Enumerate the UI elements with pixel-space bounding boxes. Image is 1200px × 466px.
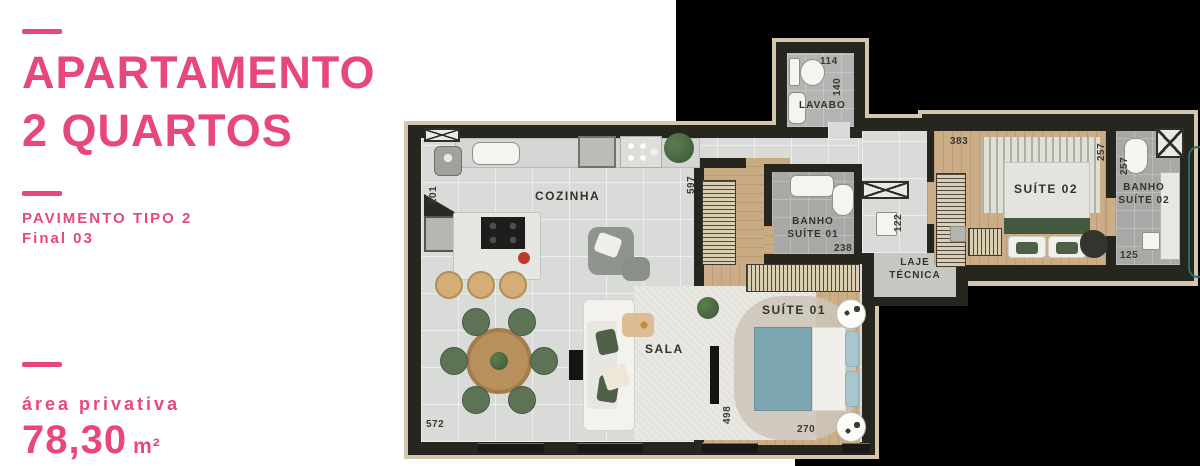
dim-lavabo-depth: 140 xyxy=(832,68,843,96)
room-label-sala: SALA xyxy=(645,342,684,356)
dim-suite02-depth: 257 xyxy=(1096,133,1107,161)
dim-sala-width: 572 xyxy=(426,419,444,430)
bed-suite01-sheet xyxy=(812,327,846,411)
pantry-module xyxy=(620,136,662,168)
side-table xyxy=(622,313,654,337)
bench-suite02 xyxy=(968,228,1002,256)
private-area-value: 78,30m² xyxy=(22,418,161,463)
dining-chair-6 xyxy=(508,308,536,336)
laje-line2: TÉCNICA xyxy=(876,269,954,282)
table-centerpiece xyxy=(490,352,508,370)
door-lavabo xyxy=(828,122,850,140)
dining-chair-1 xyxy=(530,347,558,375)
area-unit: m² xyxy=(133,435,161,458)
dim-lavabo-width: 114 xyxy=(820,56,838,67)
side-table-suite02 xyxy=(950,226,966,242)
tv-suite01 xyxy=(710,346,719,404)
page-title-line2: 2 QUARTOS xyxy=(22,102,376,160)
tv-sala xyxy=(569,350,584,380)
banho1-line2: SUÍTE 01 xyxy=(778,228,848,241)
apartment-banner: APARTAMENTO 2 QUARTOS PAVIMENTO TIPO 2 F… xyxy=(0,0,1200,466)
room-label-suite01: SUÍTE 01 xyxy=(762,303,826,317)
dining-chair-5 xyxy=(462,308,490,336)
room-label-lavabo: LAVABO xyxy=(799,100,846,111)
cooktop xyxy=(481,217,525,249)
window-sala-1 xyxy=(478,443,544,453)
dim-hall-left: 597 xyxy=(686,166,697,194)
window-sala-2 xyxy=(577,443,643,453)
washer-niche-icon xyxy=(424,128,460,142)
fruit-bowl xyxy=(518,252,530,264)
accent-dash-middle xyxy=(22,191,62,196)
cabinet-banho-suite02 xyxy=(1142,232,1160,250)
dim-suite01-depth: 498 xyxy=(722,396,733,424)
sink-banho-suite01 xyxy=(790,175,834,197)
kitchen-plant xyxy=(664,133,694,163)
pillow-suite02-accent2 xyxy=(1056,242,1078,254)
water-purifier xyxy=(434,146,462,176)
kitchen-sink xyxy=(472,142,520,165)
room-label-banho-suite01: BANHO SUÍTE 01 xyxy=(778,215,848,241)
wardrobe-corridor xyxy=(702,180,736,265)
dim-banho2-depth: 257 xyxy=(1119,147,1130,175)
accent-dash-bottom xyxy=(22,362,62,367)
shower-banho-suite02 xyxy=(1156,128,1184,158)
page-title-line1: APARTAMENTO xyxy=(22,44,376,102)
room-label-banho-suite02: BANHO SUÍTE 02 xyxy=(1108,181,1180,207)
pillow-suite01-1 xyxy=(845,331,859,367)
toilet-banho-suite01 xyxy=(832,184,854,216)
nightstand-suite01-top xyxy=(836,299,866,329)
door-banho-suite01 xyxy=(764,226,774,254)
banho2-line1: BANHO xyxy=(1108,181,1180,194)
nightstand-suite01-bottom xyxy=(836,412,866,442)
toilet-tank-lavabo xyxy=(789,58,800,86)
wardrobe-suite02 xyxy=(936,173,966,267)
floor-type-label: PAVIMENTO TIPO 2 xyxy=(22,210,192,227)
accent-dash-top xyxy=(22,29,62,34)
stool-3 xyxy=(499,271,527,299)
beanbag-suite02 xyxy=(1080,230,1108,258)
room-label-suite02: SUÍTE 02 xyxy=(1014,182,1078,196)
dim-suite02-width: 383 xyxy=(950,136,968,147)
laje-line1: LAJE xyxy=(876,256,954,269)
window-suite01-1 xyxy=(702,443,758,453)
dim-suite01-width: 270 xyxy=(797,424,815,435)
dining-chair-2 xyxy=(508,386,536,414)
dim-kitchen-left: 201 xyxy=(428,176,439,204)
dim-banho1-width: 238 xyxy=(834,243,852,254)
wardrobe-suite01 xyxy=(746,264,860,292)
room-label-cozinha: COZINHA xyxy=(535,189,600,203)
banho2-line2: SUÍTE 02 xyxy=(1108,194,1180,207)
banho1-line1: BANHO xyxy=(778,215,848,228)
wall-corridor-top xyxy=(694,158,746,168)
page-title: APARTAMENTO 2 QUARTOS xyxy=(22,44,376,160)
pillow-suite01-2 xyxy=(845,371,859,407)
teal-border-decoration xyxy=(1188,146,1200,278)
stool-1 xyxy=(435,271,463,299)
washer-hall-icon xyxy=(862,181,909,199)
unit-final-label: Final 03 xyxy=(22,230,94,247)
private-area-label: área privativa xyxy=(22,394,180,415)
dim-banho2-width: 125 xyxy=(1120,250,1138,261)
area-number: 78,30 xyxy=(22,418,127,462)
plant-suite01 xyxy=(697,297,719,319)
dim-hall-width: 122 xyxy=(893,206,904,232)
pillow-suite02-accent1 xyxy=(1016,242,1038,254)
bed-suite02-band xyxy=(1004,218,1090,234)
room-label-laje-tecnica: LAJE TÉCNICA xyxy=(876,256,954,282)
window-suite01-2 xyxy=(842,443,870,453)
dining-chair-3 xyxy=(462,386,490,414)
dining-chair-4 xyxy=(440,347,468,375)
bed-suite01-blanket xyxy=(754,327,812,411)
ottoman xyxy=(622,257,650,281)
oven xyxy=(578,136,616,168)
stool-2 xyxy=(467,271,495,299)
